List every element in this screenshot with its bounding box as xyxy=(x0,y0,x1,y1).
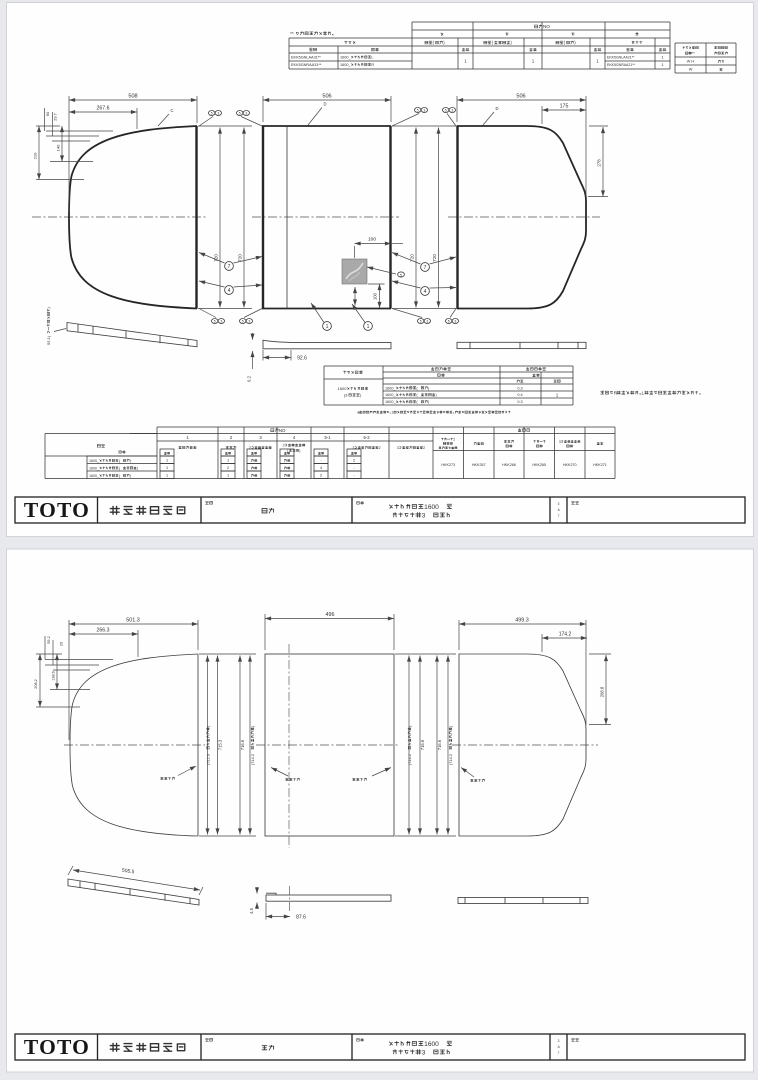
svg-text:6.2: 6.2 xyxy=(247,375,252,381)
svg-text:174.2: 174.2 xyxy=(559,632,572,638)
svg-text:1: 1 xyxy=(391,411,393,415)
svg-text:2: 2 xyxy=(283,444,285,448)
svg-text:138.6: 138.6 xyxy=(52,671,56,681)
svg-text:92.6: 92.6 xyxy=(297,356,307,362)
svg-text:716.6: 716.6 xyxy=(240,739,245,750)
svg-text:720: 720 xyxy=(238,254,243,262)
svg-text:1600_: 1600_ xyxy=(385,400,396,404)
svg-text:267.6: 267.6 xyxy=(97,106,110,112)
svg-text:L: L xyxy=(642,391,645,397)
svg-text:3: 3 xyxy=(248,320,250,324)
svg-text:140: 140 xyxy=(56,144,61,151)
svg-text:D: D xyxy=(495,106,498,111)
svg-text:HKK273: HKK273 xyxy=(441,463,455,467)
svg-text:NO: NO xyxy=(543,24,550,29)
svg-text:): ) xyxy=(137,466,138,470)
svg-text:3: 3 xyxy=(352,446,354,450)
svg-text:3: 3 xyxy=(245,112,247,116)
svg-text:1600_: 1600_ xyxy=(385,386,396,390)
svg-text:HKK265: HKK265 xyxy=(532,463,546,467)
svg-text:EKK5GNRAA21**: EKK5GNRAA21** xyxy=(607,63,636,67)
svg-text:506: 506 xyxy=(322,94,331,100)
svg-text:): ) xyxy=(130,474,131,478)
svg-text:2: 2 xyxy=(249,446,251,450)
svg-text:0.3: 0.3 xyxy=(517,386,522,390)
svg-text:2: 2 xyxy=(453,438,455,442)
svg-text:5: 5 xyxy=(417,109,419,113)
svg-text:1: 1 xyxy=(166,459,168,463)
svg-text:268.8: 268.8 xyxy=(600,686,605,697)
svg-text:4: 4 xyxy=(424,289,427,295)
svg-text:2: 2 xyxy=(353,459,355,463)
svg-text:278: 278 xyxy=(597,159,602,167)
svg-text:5-2: 5-2 xyxy=(363,435,370,440)
svg-text:5: 5 xyxy=(420,320,422,324)
svg-text:7: 7 xyxy=(558,1051,560,1055)
svg-text:210: 210 xyxy=(33,152,38,159)
svg-text:TOTO: TOTO xyxy=(24,1035,90,1059)
svg-text:7: 7 xyxy=(424,265,427,271)
svg-text:HKK271: HKK271 xyxy=(593,463,607,467)
svg-text:EKK5GNLAA31**: EKK5GNLAA31** xyxy=(291,56,321,60)
svg-text:87.6: 87.6 xyxy=(296,915,306,921)
svg-text:5: 5 xyxy=(239,112,241,116)
svg-text:(714.2: (714.2 xyxy=(250,753,255,765)
svg-text:4.5: 4.5 xyxy=(249,907,254,913)
svg-text:3: 3 xyxy=(397,446,399,450)
svg-text:1600_: 1600_ xyxy=(89,466,100,470)
svg-text:HKK267: HKK267 xyxy=(472,463,486,467)
svg-text:(714.2: (714.2 xyxy=(407,753,412,765)
svg-text:W H: W H xyxy=(687,60,695,64)
svg-text:NO: NO xyxy=(279,428,286,433)
svg-text:266.3: 266.3 xyxy=(97,628,110,634)
svg-text:HKK266: HKK266 xyxy=(502,463,516,467)
svg-text:1600_: 1600_ xyxy=(385,393,396,397)
svg-text:(712.9: (712.9 xyxy=(206,753,211,765)
svg-text:55.1(: 55.1( xyxy=(46,335,51,345)
svg-text:1600_: 1600_ xyxy=(340,63,351,67)
svg-text:5: 5 xyxy=(214,320,216,324)
svg-text:D: D xyxy=(323,102,326,107)
svg-text:1600_: 1600_ xyxy=(89,474,100,478)
svg-text:2: 2 xyxy=(227,466,229,470)
svg-text:59.2: 59.2 xyxy=(47,636,51,643)
svg-text:3: 3 xyxy=(422,1050,426,1057)
svg-text:EKK5GNLAA21**: EKK5GNLAA21** xyxy=(607,56,635,60)
svg-text:1600: 1600 xyxy=(424,504,439,511)
svg-text:29.7: 29.7 xyxy=(53,112,58,121)
svg-text:715.3: 715.3 xyxy=(218,739,223,750)
svg-text:2: 2 xyxy=(320,474,322,478)
svg-text:1: 1 xyxy=(227,459,229,463)
svg-text:1: 1 xyxy=(227,474,229,478)
svg-text:5: 5 xyxy=(448,320,450,324)
svg-text:0.3: 0.3 xyxy=(517,400,522,404)
svg-text:5: 5 xyxy=(445,109,447,113)
svg-text:3: 3 xyxy=(422,513,426,520)
svg-text:5: 5 xyxy=(211,112,213,116)
svg-text:HKK270: HKK270 xyxy=(563,463,577,467)
svg-text:5-1: 5-1 xyxy=(324,435,331,440)
svg-text:716.6: 716.6 xyxy=(420,739,425,750)
svg-text:L: L xyxy=(371,56,373,60)
svg-text:1: 1 xyxy=(326,324,329,330)
svg-text:1600: 1600 xyxy=(338,386,348,391)
svg-text:720: 720 xyxy=(432,254,437,262)
svg-text:1: 1 xyxy=(166,474,168,478)
svg-text:716.6: 716.6 xyxy=(437,739,442,750)
svg-text:508: 508 xyxy=(128,94,137,100)
svg-text:(714.2: (714.2 xyxy=(448,753,453,765)
svg-text:3: 3 xyxy=(558,1039,560,1043)
svg-text:1600_: 1600_ xyxy=(340,56,351,60)
svg-text:C: C xyxy=(170,108,173,113)
svg-text:5: 5 xyxy=(242,320,244,324)
svg-text:W: W xyxy=(689,68,693,72)
svg-text:3: 3 xyxy=(558,502,560,506)
svg-text:2: 2 xyxy=(423,446,425,450)
svg-text:100: 100 xyxy=(368,237,376,243)
svg-text:100: 100 xyxy=(373,292,378,300)
svg-text:501.3: 501.3 xyxy=(126,618,140,624)
svg-text:208.2: 208.2 xyxy=(34,679,38,689)
svg-text:1: 1 xyxy=(367,324,370,330)
svg-text:): ) xyxy=(299,449,300,453)
svg-text:**: ** xyxy=(290,31,294,37)
svg-text:2: 2 xyxy=(379,446,381,450)
svg-text:3: 3 xyxy=(451,109,453,113)
svg-text:496: 496 xyxy=(326,612,335,618)
svg-text:29: 29 xyxy=(60,642,64,646)
svg-text:720: 720 xyxy=(214,254,219,262)
svg-text:7: 7 xyxy=(228,264,231,270)
svg-text:4: 4 xyxy=(320,466,322,470)
svg-text:3: 3 xyxy=(220,320,222,324)
svg-text:7: 7 xyxy=(558,514,560,518)
svg-text:1600: 1600 xyxy=(424,1041,439,1048)
svg-text:1: 1 xyxy=(166,466,168,470)
svg-text:EKK5GNRAA31**: EKK5GNRAA31** xyxy=(291,63,322,67)
svg-text:3: 3 xyxy=(423,109,425,113)
svg-text:R: R xyxy=(371,63,374,67)
svg-text:506: 506 xyxy=(516,94,525,100)
svg-text:175: 175 xyxy=(560,104,569,110)
svg-text:4: 4 xyxy=(228,288,231,294)
svg-text:1600_: 1600_ xyxy=(89,459,100,463)
svg-text:TOTO: TOTO xyxy=(24,498,90,522)
svg-text:3: 3 xyxy=(217,112,219,116)
svg-text:): ) xyxy=(130,459,131,463)
svg-text:60: 60 xyxy=(45,111,50,116)
svg-text:3: 3 xyxy=(426,320,428,324)
svg-text:0.4: 0.4 xyxy=(517,393,522,397)
svg-text:5: 5 xyxy=(400,273,402,277)
svg-text:3: 3 xyxy=(454,320,456,324)
svg-text:499.3: 499.3 xyxy=(515,618,529,624)
svg-text:3: 3 xyxy=(559,440,561,444)
